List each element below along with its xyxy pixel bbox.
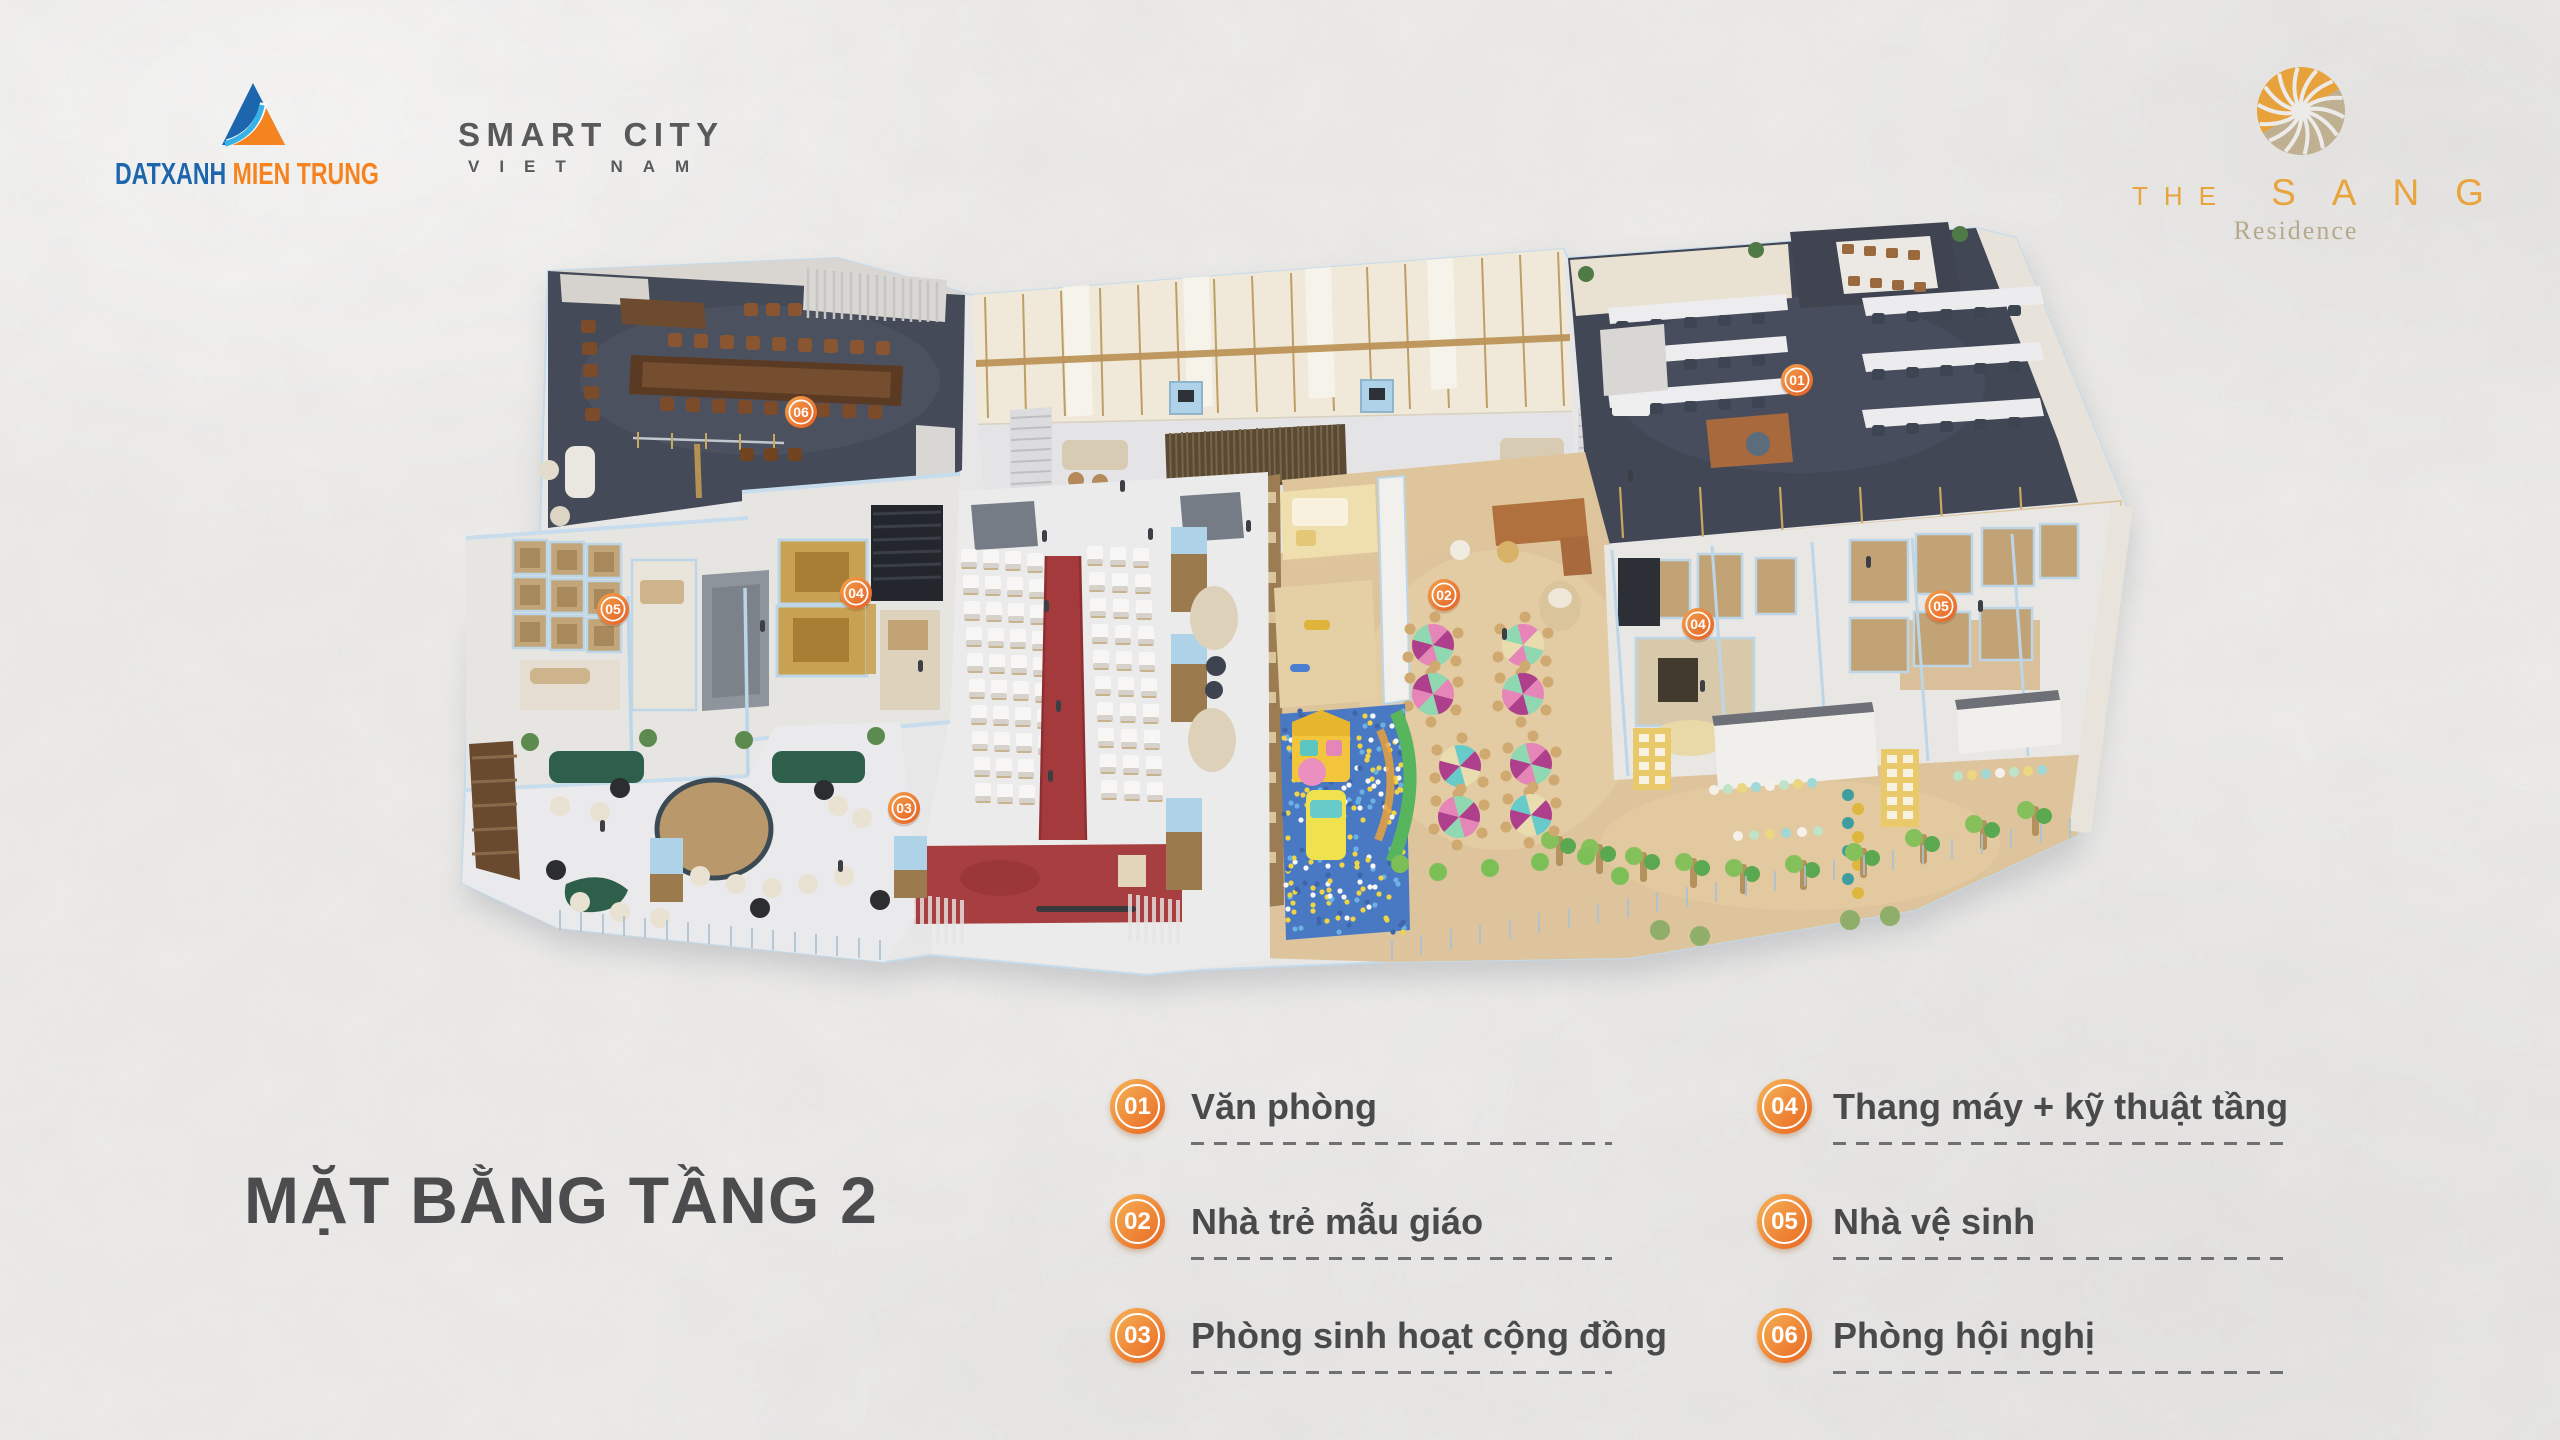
svg-text:03: 03 xyxy=(896,800,912,816)
svg-text:04: 04 xyxy=(848,585,864,601)
svg-text:05: 05 xyxy=(1933,598,1949,614)
svg-text:02: 02 xyxy=(1436,587,1452,603)
svg-text:04: 04 xyxy=(1690,616,1706,632)
svg-text:06: 06 xyxy=(793,404,809,420)
svg-text:05: 05 xyxy=(605,601,621,617)
svg-text:01: 01 xyxy=(1789,372,1805,388)
